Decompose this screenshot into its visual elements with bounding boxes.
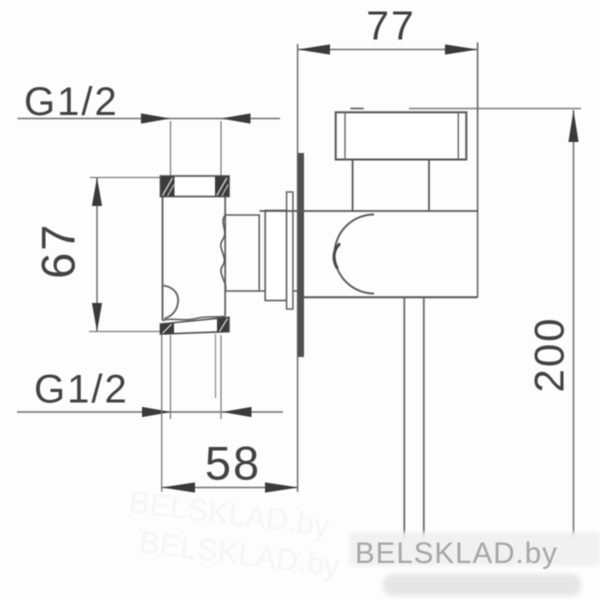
svg-text:58: 58 bbox=[205, 437, 261, 490]
svg-text:200: 200 bbox=[526, 316, 573, 392]
svg-text:67: 67 bbox=[31, 223, 84, 279]
svg-text:G1/2: G1/2 bbox=[34, 368, 129, 412]
svg-text:BELSKLAD.by: BELSKLAD.by bbox=[355, 537, 558, 570]
svg-text:77: 77 bbox=[366, 3, 416, 49]
svg-text:G1/2: G1/2 bbox=[24, 80, 119, 124]
